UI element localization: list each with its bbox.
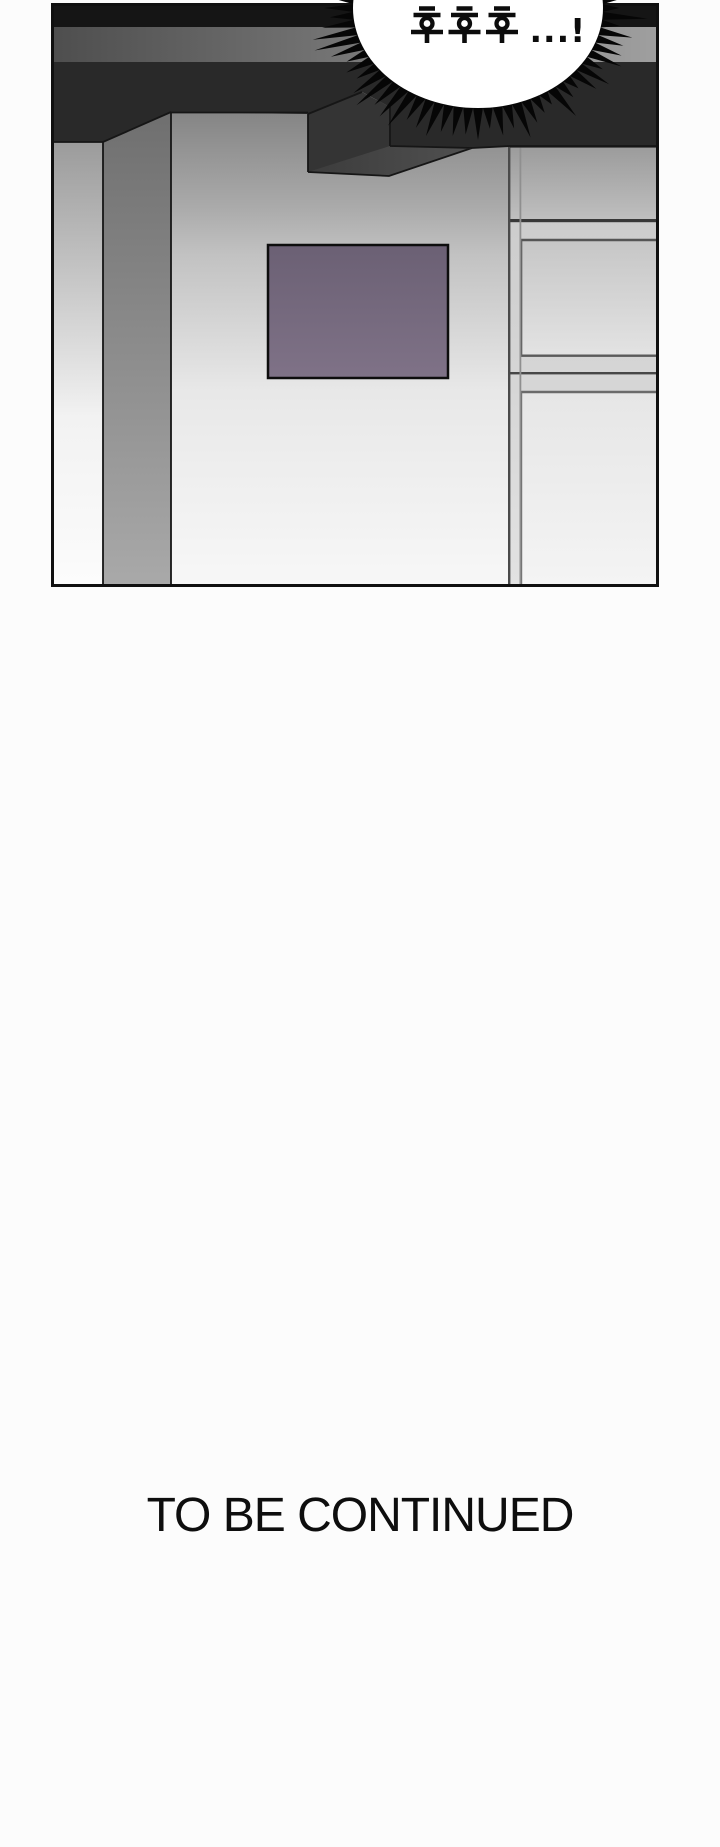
cabinet-drawer-upper (521, 240, 658, 356)
webtoon-page: 후후후...! (0, 0, 720, 1847)
cabinet-top-section (510, 146, 658, 222)
cabinet (508, 145, 658, 586)
comic-panel: ...! (0, 0, 720, 640)
pillar-light (52, 141, 103, 586)
pillar-dark (103, 112, 171, 586)
picture-frame (268, 245, 448, 378)
to-be-continued-text: TO BE CONTINUED (0, 1488, 720, 1543)
cabinet-drawer-lower (521, 392, 658, 586)
svg-text:...!: ...! (530, 11, 587, 50)
